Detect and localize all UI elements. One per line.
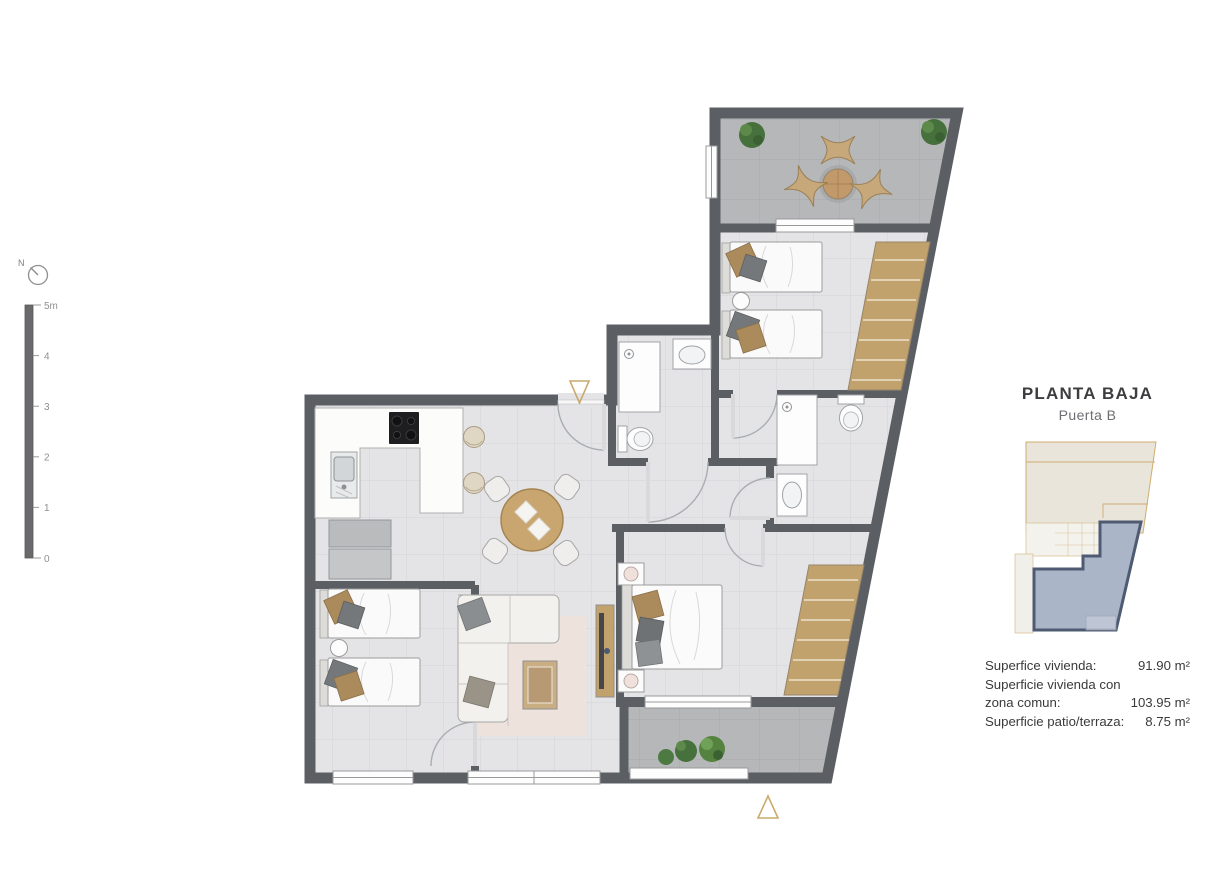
bar-stool	[464, 427, 485, 448]
coffee-table-inner	[528, 667, 552, 703]
tv-console	[596, 605, 614, 697]
area-row: zona comun: 103.95 m²	[985, 694, 1190, 713]
info-panel: PLANTA BAJA Puerta B Superfice vivienda:…	[985, 384, 1190, 731]
bed-headboard	[722, 243, 730, 293]
nightstand	[331, 640, 348, 657]
minimap-building-upper	[1026, 442, 1156, 533]
scale-labels: 5m 4 3 2 1 0	[44, 301, 58, 565]
patio-planter-strip	[630, 768, 748, 779]
floorplan-page: N 5m 4 3 2 1 0 PLANTA BAJA Puerta B	[0, 0, 1220, 870]
terrace-sliding-door	[776, 219, 854, 232]
scale-bar: 5m 4 3 2 1 0	[8, 293, 78, 578]
scale-ticks	[33, 305, 41, 558]
burner	[406, 430, 416, 440]
site-key-plan	[988, 429, 1188, 651]
area-label: Superfice vivienda:	[985, 657, 1096, 676]
kitchen-sink-basin	[334, 457, 354, 481]
nightstand	[733, 293, 750, 310]
burner	[393, 431, 400, 438]
burner	[407, 417, 414, 424]
bed-headboard	[320, 590, 328, 638]
master-window	[645, 696, 751, 708]
page-title: PLANTA BAJA	[985, 384, 1190, 404]
bedroom3-window	[333, 771, 413, 784]
area-row: Superficie vivienda con	[985, 676, 1190, 695]
toilet-tank	[618, 426, 627, 452]
scale-label-1: 1	[44, 503, 50, 514]
north-label: N	[18, 258, 25, 268]
scale-label-4: 4	[44, 352, 50, 363]
minimap-unit-patio	[1086, 616, 1116, 630]
plant-icon	[739, 122, 765, 148]
console-knob	[604, 648, 610, 654]
scale-bar-strip	[25, 305, 33, 558]
appliance	[329, 549, 391, 579]
area-label: Superficie patio/terraza:	[985, 713, 1124, 732]
living-window	[468, 771, 600, 784]
toilet-tank	[838, 395, 864, 404]
compass-needle	[31, 268, 39, 276]
pillow	[635, 639, 662, 666]
area-value: 8.75 m²	[1145, 713, 1190, 732]
minimap-common-zone	[1026, 523, 1101, 556]
toilet-bowl-inner	[634, 432, 650, 447]
shower-head-dot	[786, 406, 789, 409]
area-label: zona comun:	[985, 694, 1061, 713]
sink-basin	[783, 482, 802, 508]
plant-icon	[921, 119, 947, 145]
scale-label-0: 0	[44, 554, 50, 565]
patio-floor	[624, 702, 842, 778]
appliance	[329, 520, 391, 547]
north-compass: N	[8, 252, 62, 294]
lamp-icon	[624, 674, 638, 688]
area-row: Superficie patio/terraza: 8.75 m²	[985, 713, 1190, 732]
lamp-icon	[624, 567, 638, 581]
bed-headboard	[622, 585, 632, 669]
terrace-left-window	[706, 146, 717, 198]
minimap-left-wing	[1015, 554, 1033, 633]
shower-head-dot	[628, 353, 631, 356]
area-summary: Superfice vivienda: 91.90 m² Superficie …	[985, 657, 1190, 731]
bar-stool	[464, 473, 485, 494]
scale-label-3: 3	[44, 402, 50, 413]
scale-label-5m: 5m	[44, 301, 58, 312]
area-value: 91.90 m²	[1138, 657, 1190, 676]
dining-table	[501, 489, 563, 551]
entrance-marker-bottom	[758, 796, 778, 818]
area-label: Superficie vivienda con	[985, 676, 1121, 695]
burner	[392, 416, 402, 426]
toilet-bowl-inner	[844, 412, 859, 428]
tv-icon	[599, 613, 604, 689]
area-value: 103.95 m²	[1131, 694, 1190, 713]
area-row: Superfice vivienda: 91.90 m²	[985, 657, 1190, 676]
scale-label-2: 2	[44, 453, 50, 464]
sink-basin	[679, 346, 705, 364]
page-subtitle: Puerta B	[985, 407, 1190, 423]
